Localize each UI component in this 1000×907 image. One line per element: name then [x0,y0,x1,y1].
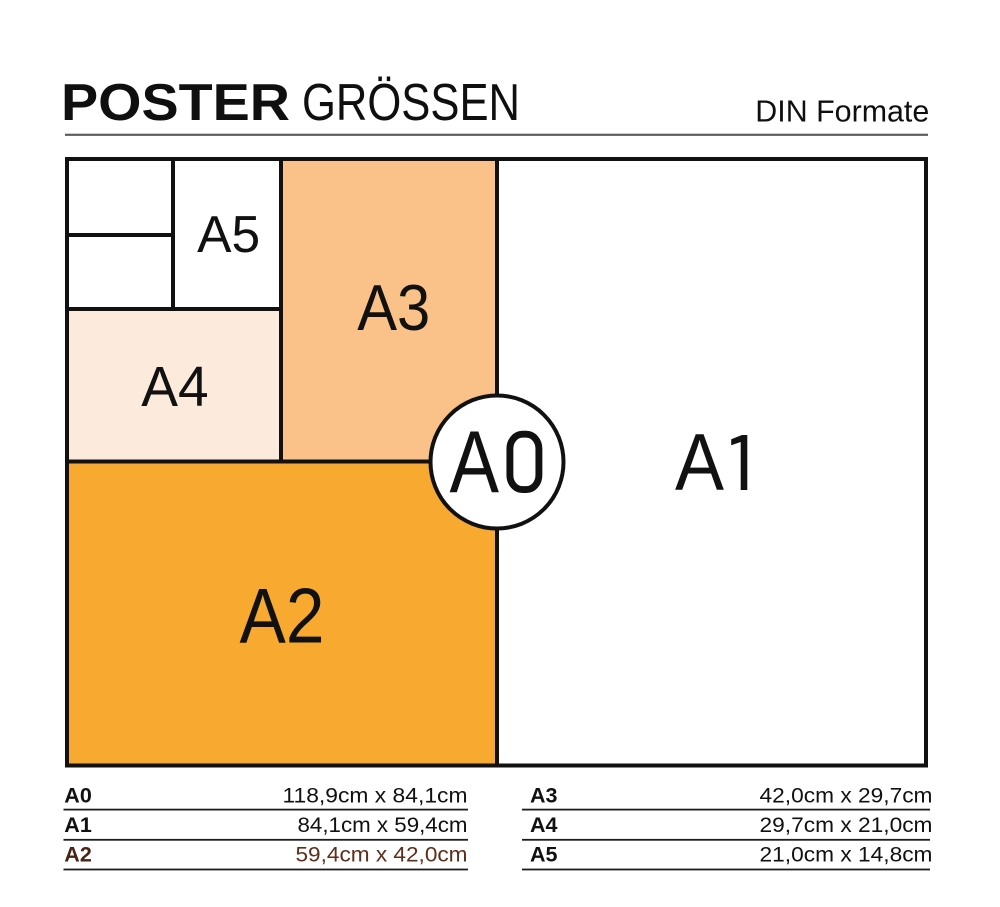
svg-text:42,0cm x 29,7cm: 42,0cm x 29,7cm [760,784,933,808]
svg-text:A0: A0 [64,784,92,808]
svg-text:A4: A4 [141,355,208,419]
svg-text:21,0cm x 14,8cm: 21,0cm x 14,8cm [760,843,933,867]
svg-text:A: A [675,418,724,508]
svg-text:GRÖSSEN: GRÖSSEN [302,74,520,132]
svg-text:29,7cm x 21,0cm: 29,7cm x 21,0cm [760,813,933,837]
svg-text:59,4cm x 42,0cm: 59,4cm x 42,0cm [296,843,468,867]
svg-text:POSTER: POSTER [61,74,290,132]
svg-text:A3: A3 [530,784,558,808]
svg-text:A2: A2 [64,843,92,867]
svg-text:A: A [450,413,500,512]
svg-text:A1: A1 [64,813,92,837]
svg-text:A5: A5 [530,843,558,867]
svg-text:A3: A3 [357,272,430,344]
svg-text:DIN Formate: DIN Formate [755,96,929,129]
svg-text:84,1cm x 59,4cm: 84,1cm x 59,4cm [298,813,468,837]
svg-text:A4: A4 [530,813,558,837]
svg-text:A5: A5 [197,206,260,264]
svg-text:118,9cm x 84,1cm: 118,9cm x 84,1cm [283,784,468,808]
svg-text:A2: A2 [240,574,325,660]
